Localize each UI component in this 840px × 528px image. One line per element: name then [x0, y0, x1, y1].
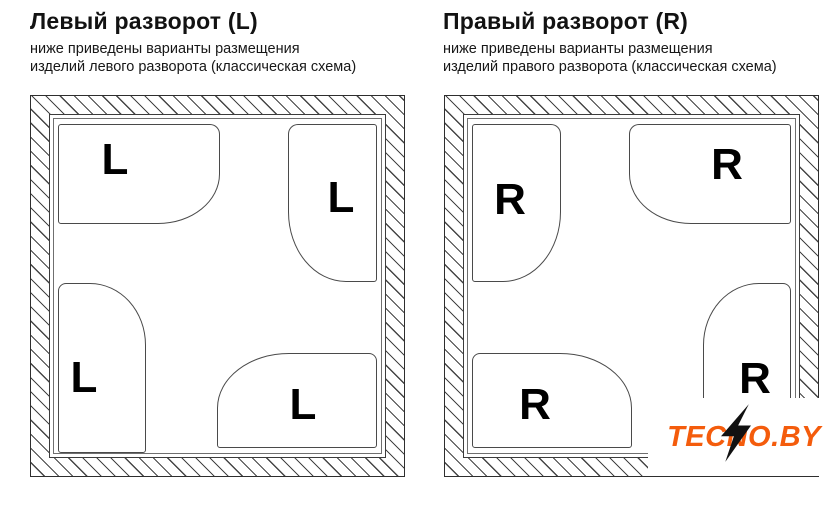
bath-letter: L — [71, 356, 98, 400]
bath-bottom-left — [472, 353, 632, 448]
brand-text-pre: TEC — [667, 421, 727, 453]
left-room-plan: L L L L — [30, 95, 405, 477]
right-panel-subtitle-line2: изделий правого разворота (классическая … — [443, 59, 777, 75]
watermark: TECNO.BY — [648, 398, 840, 476]
bath-letter: L — [290, 383, 317, 427]
brand-logo: TECNO.BY — [667, 423, 821, 452]
bath-top-left — [58, 124, 220, 224]
right-panel-subtitle-line1: ниже приведены варианты размещения — [443, 41, 713, 57]
bath-letter: L — [102, 138, 129, 182]
left-room-floor: L L L L — [49, 114, 386, 458]
bath-letter: R — [711, 143, 743, 187]
bath-letter: L — [328, 176, 355, 220]
left-panel-subtitle-line2: изделий левого разворота (классическая с… — [30, 59, 356, 75]
left-panel-title: Левый разворот (L) — [30, 8, 258, 35]
brand-text-post: O.BY — [748, 421, 821, 453]
bath-letter: R — [519, 383, 551, 427]
bath-letter: R — [494, 178, 526, 222]
left-panel-subtitle-line1: ниже приведены варианты размещения — [30, 41, 300, 57]
page: Левый разворот (L) ниже приведены вариан… — [0, 0, 840, 528]
right-panel-title: Правый разворот (R) — [443, 8, 688, 35]
bath-top-right — [629, 124, 791, 224]
bath-letter: R — [739, 357, 771, 401]
lightning-bolt-icon — [721, 404, 751, 462]
brand-letter-n: N — [727, 423, 748, 452]
